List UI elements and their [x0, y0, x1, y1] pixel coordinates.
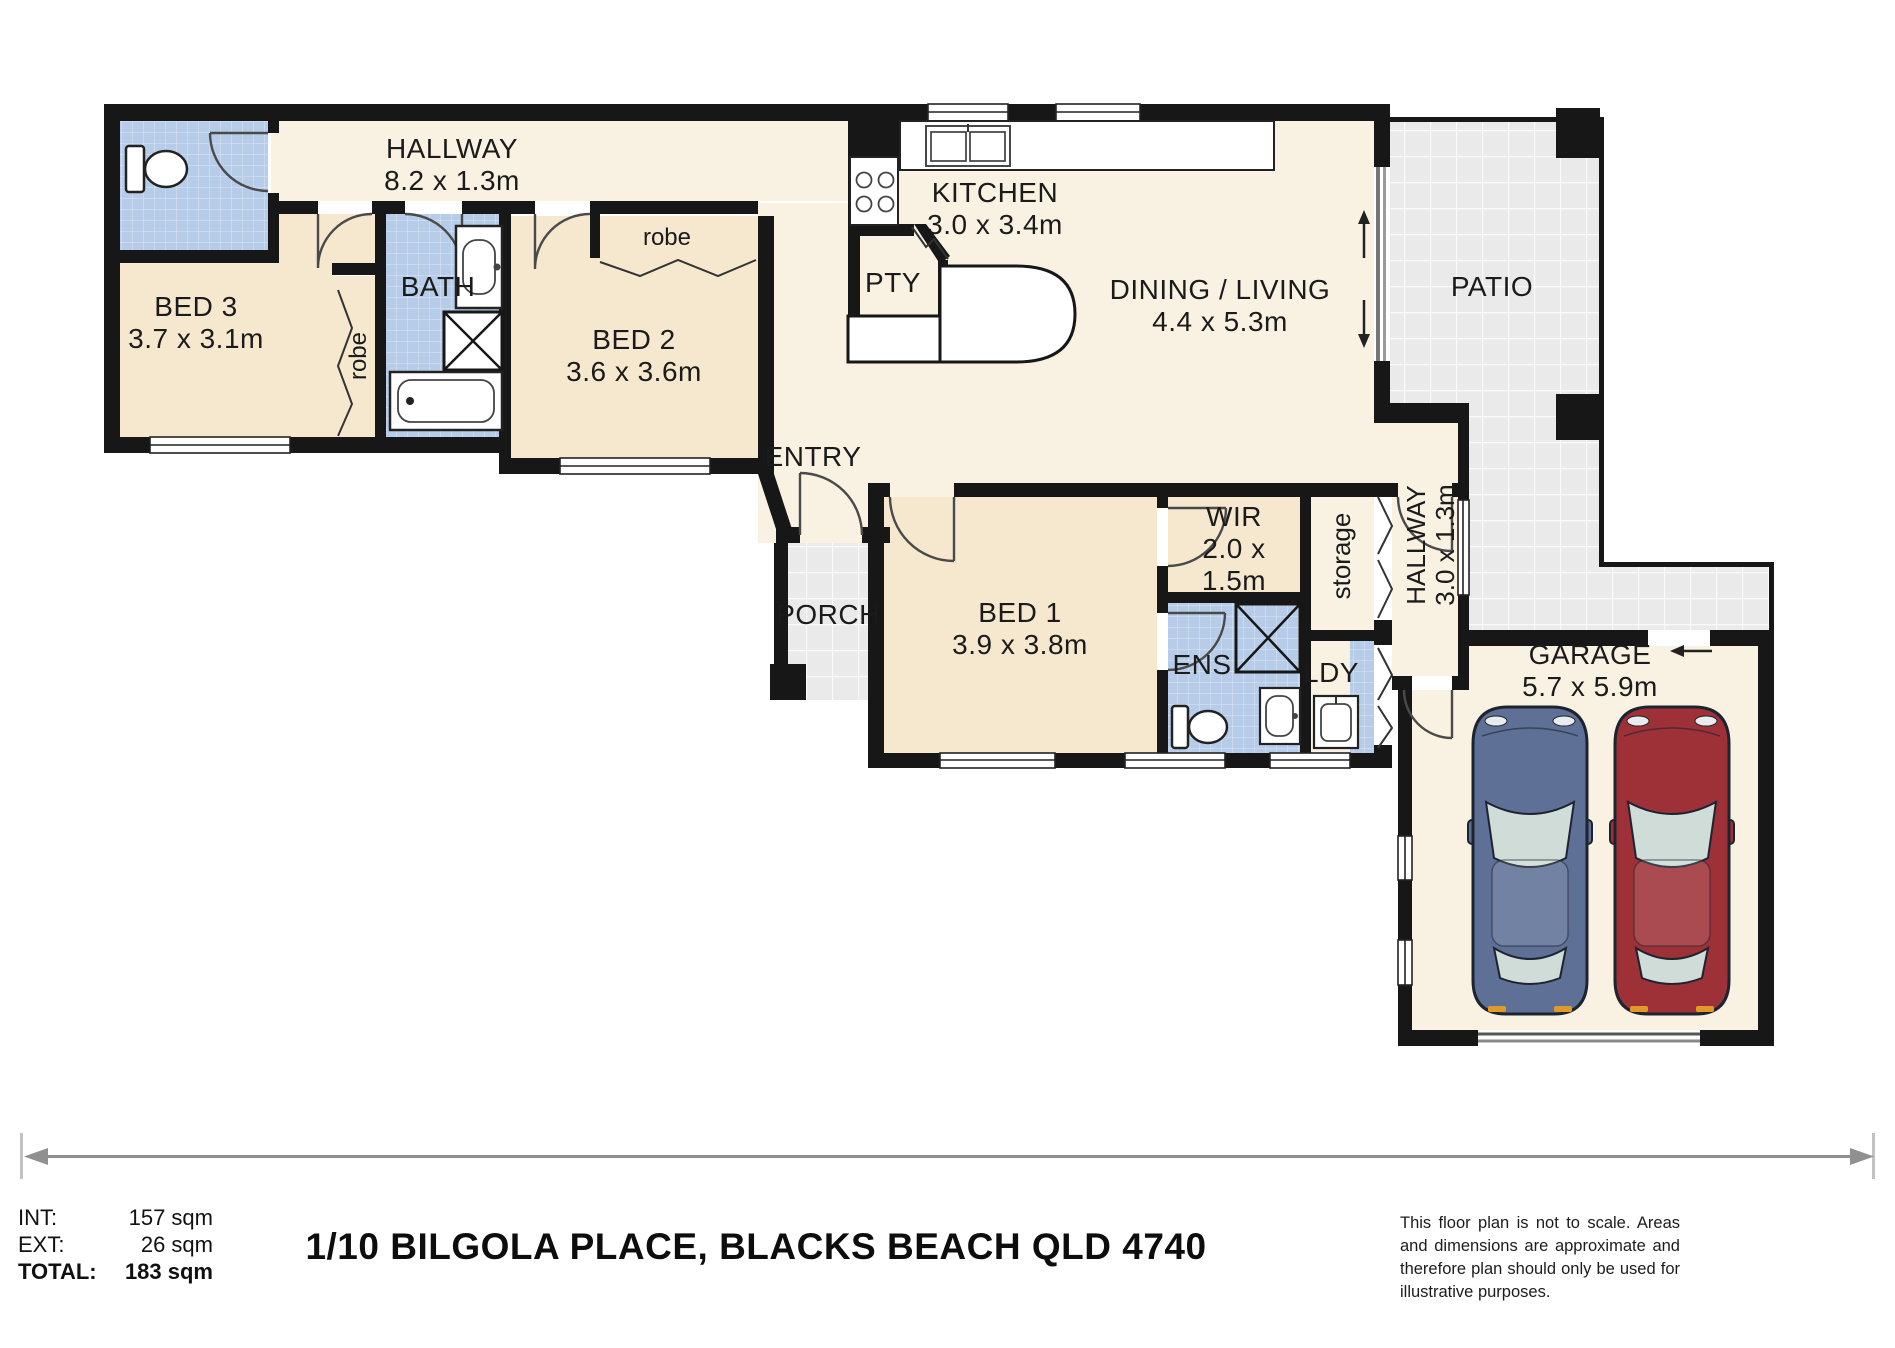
kitchen-sink-icon	[926, 124, 1010, 166]
wall-segment	[332, 263, 375, 275]
area-row-ext: EXT: 26 sqm	[18, 1231, 218, 1258]
area-row-int: INT: 157 sqm	[18, 1204, 218, 1231]
porch-label: PORCH	[776, 599, 880, 630]
wall-segment	[1374, 620, 1392, 645]
wir-dims-2: 1.5m	[1202, 565, 1266, 596]
stove-icon	[850, 157, 898, 225]
bed2-dims: 3.6 x 3.6m	[566, 356, 702, 387]
wall-segment	[848, 107, 900, 157]
hallway-top-label: HALLWAY	[386, 133, 518, 164]
wall-segment	[868, 483, 890, 497]
ext-value: 26 sqm	[118, 1231, 213, 1258]
dining-label: DINING / LIVING	[1110, 274, 1331, 305]
kitchen-counter	[900, 121, 1274, 170]
window	[1270, 753, 1350, 768]
wall-segment	[1374, 745, 1392, 755]
wall-segment	[1398, 880, 1412, 940]
garage-door	[1478, 1031, 1700, 1045]
bed3-dims: 3.7 x 3.1m	[128, 323, 264, 354]
window	[560, 458, 710, 474]
hallway2-label: HALLWAY	[1401, 485, 1431, 604]
wir-dims-1: 2.0 x	[1202, 533, 1265, 564]
patio-post	[1556, 394, 1600, 440]
bed1-dims: 3.9 x 3.8m	[952, 629, 1088, 660]
patio-border	[1599, 562, 1774, 567]
wall-segment	[104, 104, 1390, 121]
dining-dims: 4.4 x 5.3m	[1152, 306, 1288, 337]
hallway2-dims: 3.0 x 1.3m	[1430, 484, 1460, 605]
wall-segment	[776, 527, 800, 543]
bed2-robe-label: robe	[643, 224, 691, 251]
kitchen-label: KITCHEN	[932, 177, 1058, 208]
wall-segment	[104, 250, 279, 263]
bifold-door	[1378, 648, 1392, 748]
ens-label: ENS	[1172, 649, 1231, 680]
wall-segment	[1157, 670, 1168, 753]
bifold-door	[1378, 497, 1392, 618]
pantry-label: PTY	[865, 267, 921, 298]
wall-segment	[954, 483, 1168, 497]
patio-border	[1599, 117, 1604, 567]
wall-segment	[1055, 753, 1125, 768]
bed3-label: BED 3	[154, 291, 237, 322]
bathtub-icon	[390, 372, 502, 430]
floor-plan-page: HALLWAY 8.2 x 1.3m BED 3 3.7 x 3.1m robe…	[0, 0, 1895, 1348]
wall-segment	[1300, 483, 1311, 630]
patio-border	[1769, 562, 1774, 634]
garage-dims: 5.7 x 5.9m	[1522, 671, 1658, 702]
wall-segment	[1700, 1030, 1774, 1046]
wall-segment	[268, 121, 279, 133]
sink-icon	[1260, 688, 1300, 744]
window	[1125, 753, 1225, 768]
bed2-label: BED 2	[592, 324, 675, 355]
bed3-robe-label: robe	[345, 332, 372, 380]
total-value: 183 sqm	[118, 1258, 213, 1285]
wall-segment	[758, 216, 774, 474]
patio-post	[1556, 108, 1600, 158]
wall-segment	[1350, 753, 1392, 768]
wall-segment	[1374, 403, 1469, 423]
wall-segment	[770, 664, 806, 700]
wall-segment	[868, 497, 884, 768]
kitchen-dims: 3.0 x 3.4m	[927, 209, 1063, 240]
window	[1056, 104, 1140, 121]
wall-segment	[271, 201, 318, 214]
wall-segment	[1758, 630, 1774, 1046]
hallway-top-floor	[271, 121, 860, 201]
window	[1398, 940, 1412, 985]
car-blue	[1468, 707, 1592, 1014]
bed1-label: BED 1	[978, 597, 1061, 628]
hallway-top-dims: 8.2 x 1.3m	[384, 165, 520, 196]
toilet-icon	[126, 146, 187, 192]
wall-segment	[1452, 676, 1469, 690]
bath-label: BATH	[401, 271, 476, 302]
wall-segment	[848, 235, 860, 316]
area-row-total: TOTAL: 183 sqm	[18, 1258, 218, 1285]
entry-label: ENTRY	[765, 441, 862, 472]
patio-label: PATIO	[1451, 271, 1533, 302]
wall-segment	[590, 214, 600, 258]
wall-segment	[1168, 483, 1398, 497]
wall-segment	[1398, 1030, 1478, 1046]
ext-label: EXT:	[18, 1231, 118, 1258]
wall-segment	[868, 753, 940, 768]
wall-segment	[375, 214, 386, 437]
storage-label: storage	[1326, 513, 1356, 600]
bed3-floor-b	[268, 214, 375, 263]
wall-segment	[1157, 566, 1168, 613]
wall-segment	[372, 201, 405, 214]
int-label: INT:	[18, 1204, 118, 1231]
wall-segment	[1398, 985, 1412, 1032]
scale-bar	[20, 1133, 1875, 1179]
car-red	[1610, 707, 1734, 1014]
window	[940, 753, 1055, 768]
shower-icon	[1236, 604, 1300, 672]
wir-label: WIR	[1206, 501, 1262, 532]
wall-segment	[1374, 483, 1392, 495]
area-summary: INT: 157 sqm EXT: 26 sqm TOTAL: 183 sqm	[18, 1204, 218, 1285]
wall-segment	[1225, 753, 1270, 768]
window	[1398, 836, 1412, 880]
total-label: TOTAL:	[18, 1258, 118, 1285]
wall-segment	[1374, 121, 1390, 167]
wall-segment	[462, 201, 535, 214]
shower-icon	[444, 312, 502, 370]
property-address: 1/10 BILGOLA PLACE, BLACKS BEACH QLD 474…	[228, 1226, 1284, 1268]
wall-segment	[590, 201, 758, 214]
ldy-label: LDY	[1303, 657, 1359, 688]
window	[150, 437, 290, 453]
floor-plan-drawing: HALLWAY 8.2 x 1.3m BED 3 3.7 x 3.1m robe…	[0, 0, 1895, 1348]
int-value: 157 sqm	[118, 1204, 213, 1231]
laundry-tub-icon	[1314, 696, 1358, 748]
wall-segment	[1157, 497, 1168, 508]
disclaimer-text: This floor plan is not to scale. Areas a…	[1400, 1212, 1680, 1304]
garage-label: GARAGE	[1529, 639, 1652, 670]
wall-segment	[104, 104, 120, 453]
window	[928, 104, 1008, 121]
